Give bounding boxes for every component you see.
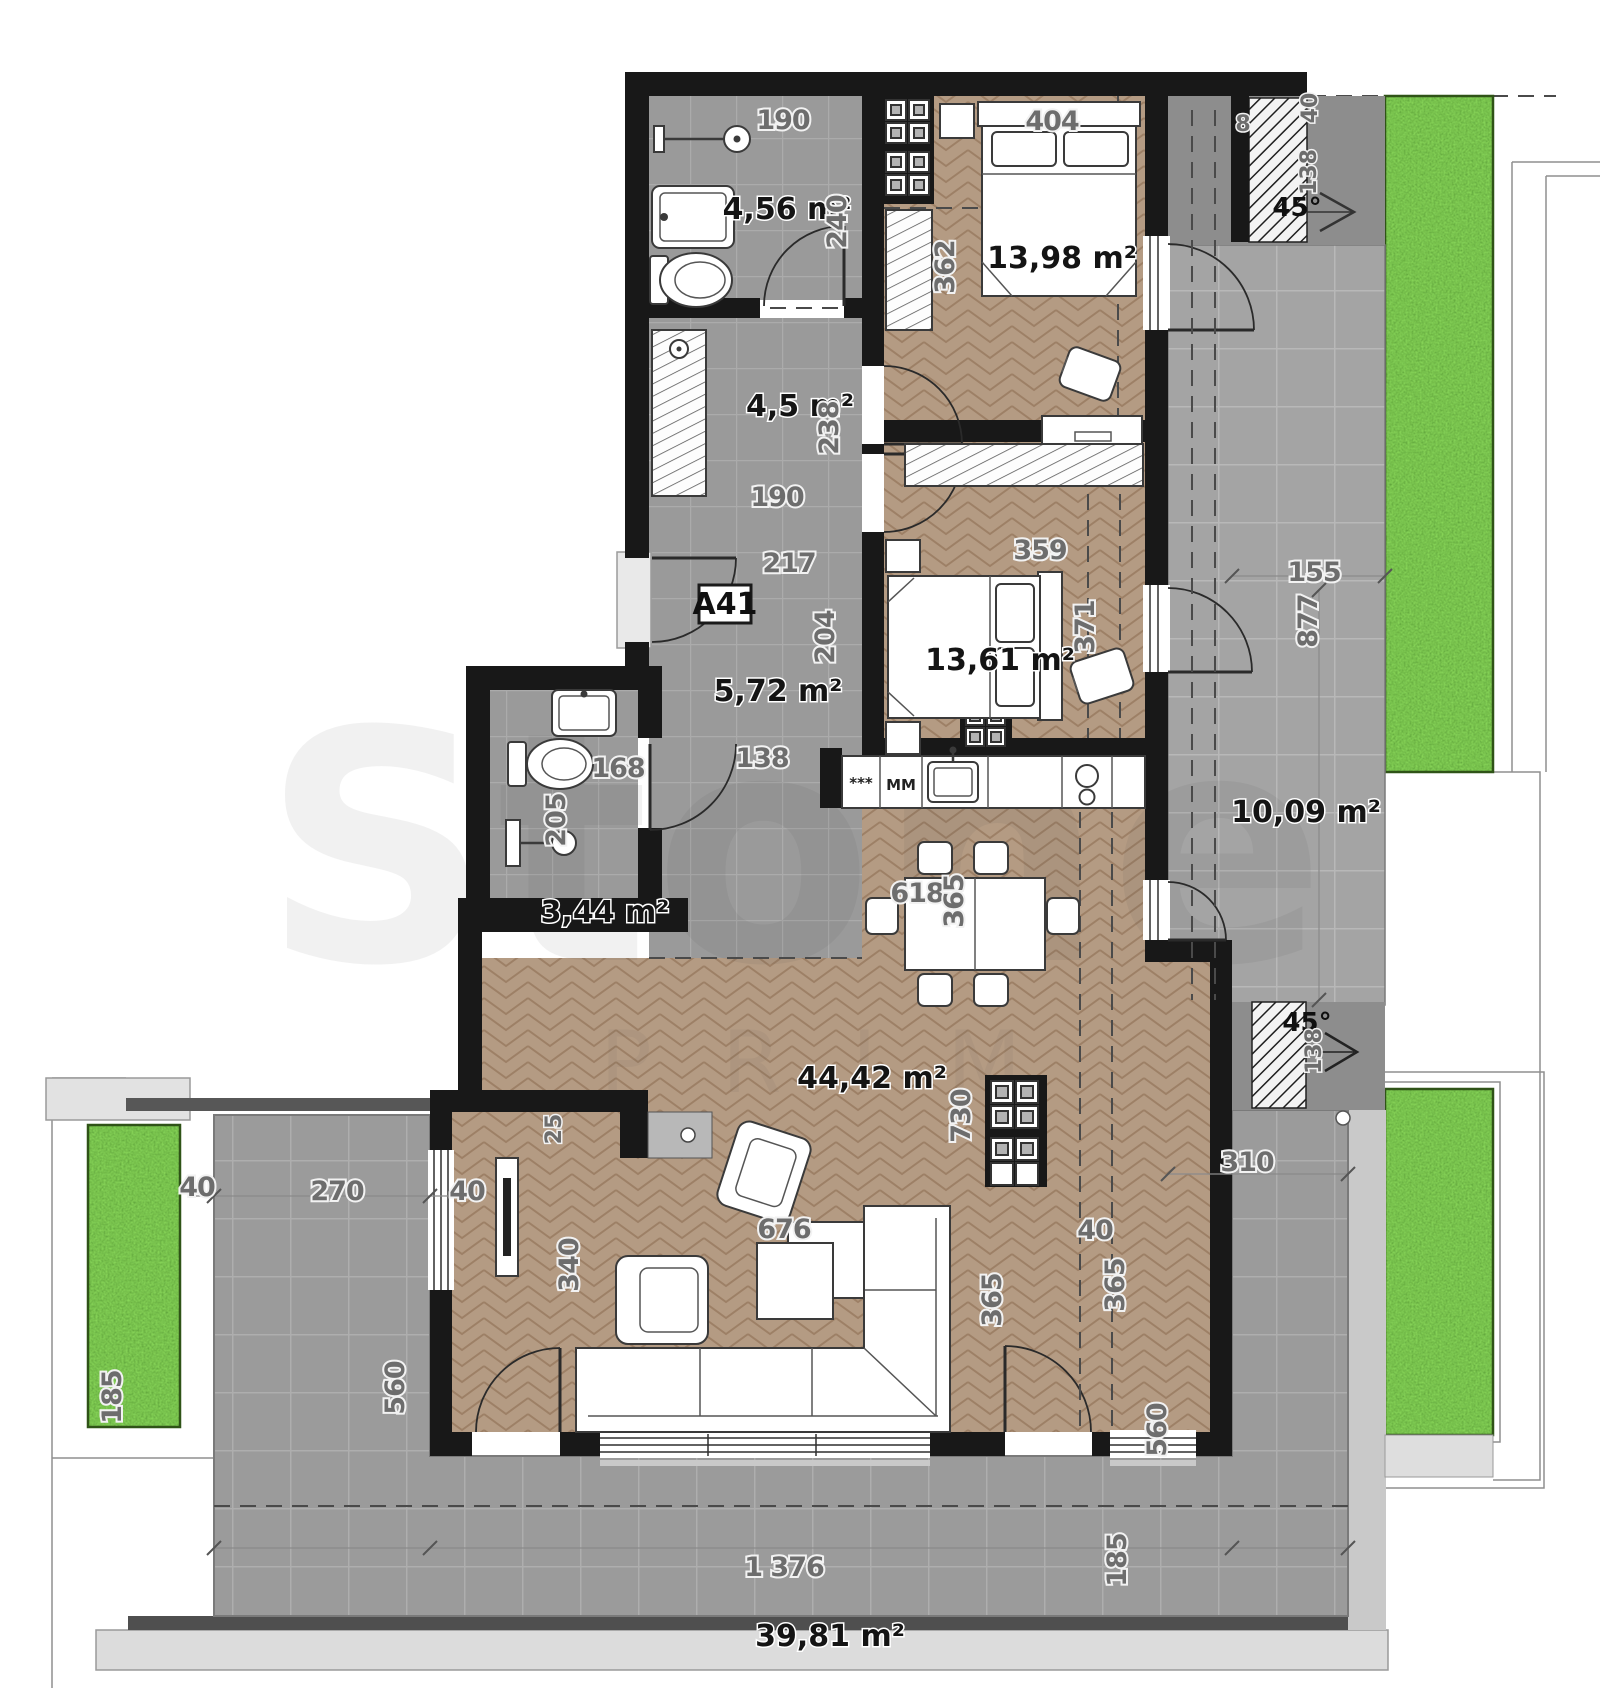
dim-dining-depth: 365 [939, 874, 970, 927]
area-label-bedroom2: 13,61 m² [925, 643, 1075, 678]
dim-bath2-width: 168 [591, 753, 645, 784]
sink-icon-bath2 [552, 690, 616, 736]
chair-icon [918, 974, 952, 1006]
dim-bedroom1-width: 404 [1025, 106, 1079, 137]
nightstand-icon-bedroom1 [940, 104, 974, 138]
chair-icon [1047, 898, 1079, 934]
chair-icon [918, 842, 952, 874]
window-left-wall [428, 1150, 454, 1290]
dim-margin-right: 185 [1102, 1533, 1133, 1586]
dim-living-depth: 730 [946, 1089, 977, 1143]
unit-badge: A41 [693, 585, 758, 623]
dim-bedroom2-width: 359 [1013, 535, 1067, 566]
dishwasher-label: MM [886, 776, 916, 794]
tv-sideboard-icon [496, 1158, 518, 1276]
dim-terrace-left-width: 270 [310, 1176, 364, 1207]
dim-edge-left: 40 [179, 1172, 215, 1203]
toilet-icon-bath2 [508, 739, 593, 789]
kitchen-counter: *** MM [842, 747, 1145, 809]
floor-plan-drawing: Stone PRIM [0, 0, 1600, 1688]
area-label-bath2: 3,44 m² [541, 895, 670, 930]
dim-side-terrace-width: 155 [1287, 557, 1340, 588]
closet-hall [652, 330, 706, 496]
area-label-terrace-main: 39,81 m² [755, 1619, 905, 1654]
dim-bedroom2-height: 371 [1070, 600, 1101, 653]
armchair-icon-left [616, 1256, 708, 1344]
chair-icon [974, 974, 1008, 1006]
dim-roof-bottom-run: 138 [1302, 1028, 1327, 1074]
dim-bath-height: 240 [822, 195, 853, 249]
dim-tv-wall: 340 [554, 1238, 585, 1292]
dim-entry-clear: 138 [735, 743, 789, 774]
window-bottom-long [600, 1430, 930, 1466]
area-label-terrace-side: 10,09 m² [1231, 795, 1381, 830]
area-label-living: 44,42 m² [797, 1061, 947, 1096]
dim-terrace-right-height: 560 [1142, 1403, 1173, 1457]
radiator-niche [648, 1112, 712, 1158]
dim-bedroom1-height: 362 [930, 240, 961, 293]
dim-roof-top-run: 138 [1297, 149, 1322, 195]
dim-bath-width: 190 [756, 105, 810, 136]
dim-hall-width: 190 [750, 482, 804, 513]
dim-entry-width: 217 [762, 548, 815, 579]
floor-plan-page: Stone PRIM [0, 0, 1600, 1688]
wardrobe-icon-bedroom2 [905, 444, 1143, 486]
dim-terrace-right-width: 310 [1220, 1147, 1274, 1178]
toilet-icon-bath1 [650, 253, 732, 307]
roof-angle-top: 45° [1272, 193, 1321, 223]
area-label-bedroom1: 13,98 m² [987, 241, 1137, 276]
grass-patch-bottom-right [1385, 1089, 1493, 1435]
dim-side-terrace-height: 877 [1293, 594, 1324, 647]
dim-dining-width: 618 [890, 878, 944, 909]
coffee-table-icon [757, 1243, 833, 1319]
dim-window-left: 365 [977, 1273, 1008, 1326]
dim-wall-gap: 40 [1077, 1215, 1113, 1246]
dim-wall-left: 40 [449, 1176, 485, 1207]
area-label-entry: 5,72 m² [714, 674, 843, 709]
dim-tv-offset: 25 [542, 1114, 567, 1145]
dim-terrace-width: 1 376 [744, 1552, 824, 1583]
wardrobe-icon-bedroom1 [886, 210, 932, 330]
dim-terrace-left-height: 560 [380, 1361, 411, 1415]
dim-window-right: 365 [1100, 1258, 1131, 1311]
watermark-primary: Stone [262, 664, 1330, 1036]
unit-badge-label: A41 [693, 587, 758, 622]
entrance-recess [617, 552, 651, 648]
dim-hall-height: 238 [814, 401, 845, 455]
nightstand-icon-bedroom2-top [886, 540, 920, 572]
chair-icon [974, 842, 1008, 874]
dim-bath2-height: 205 [541, 793, 572, 846]
dim-eave: 8 [1235, 112, 1250, 137]
grass-strip-top-right [1385, 96, 1493, 772]
dim-closet-depth: 204 [810, 610, 841, 664]
dim-margin-left: 185 [97, 1370, 128, 1423]
hob-label: *** [849, 774, 873, 792]
dim-eave-side: 40 [1298, 93, 1323, 124]
dim-living-width: 676 [757, 1214, 811, 1245]
nightstand-icon-bedroom2-bottom [886, 722, 920, 754]
